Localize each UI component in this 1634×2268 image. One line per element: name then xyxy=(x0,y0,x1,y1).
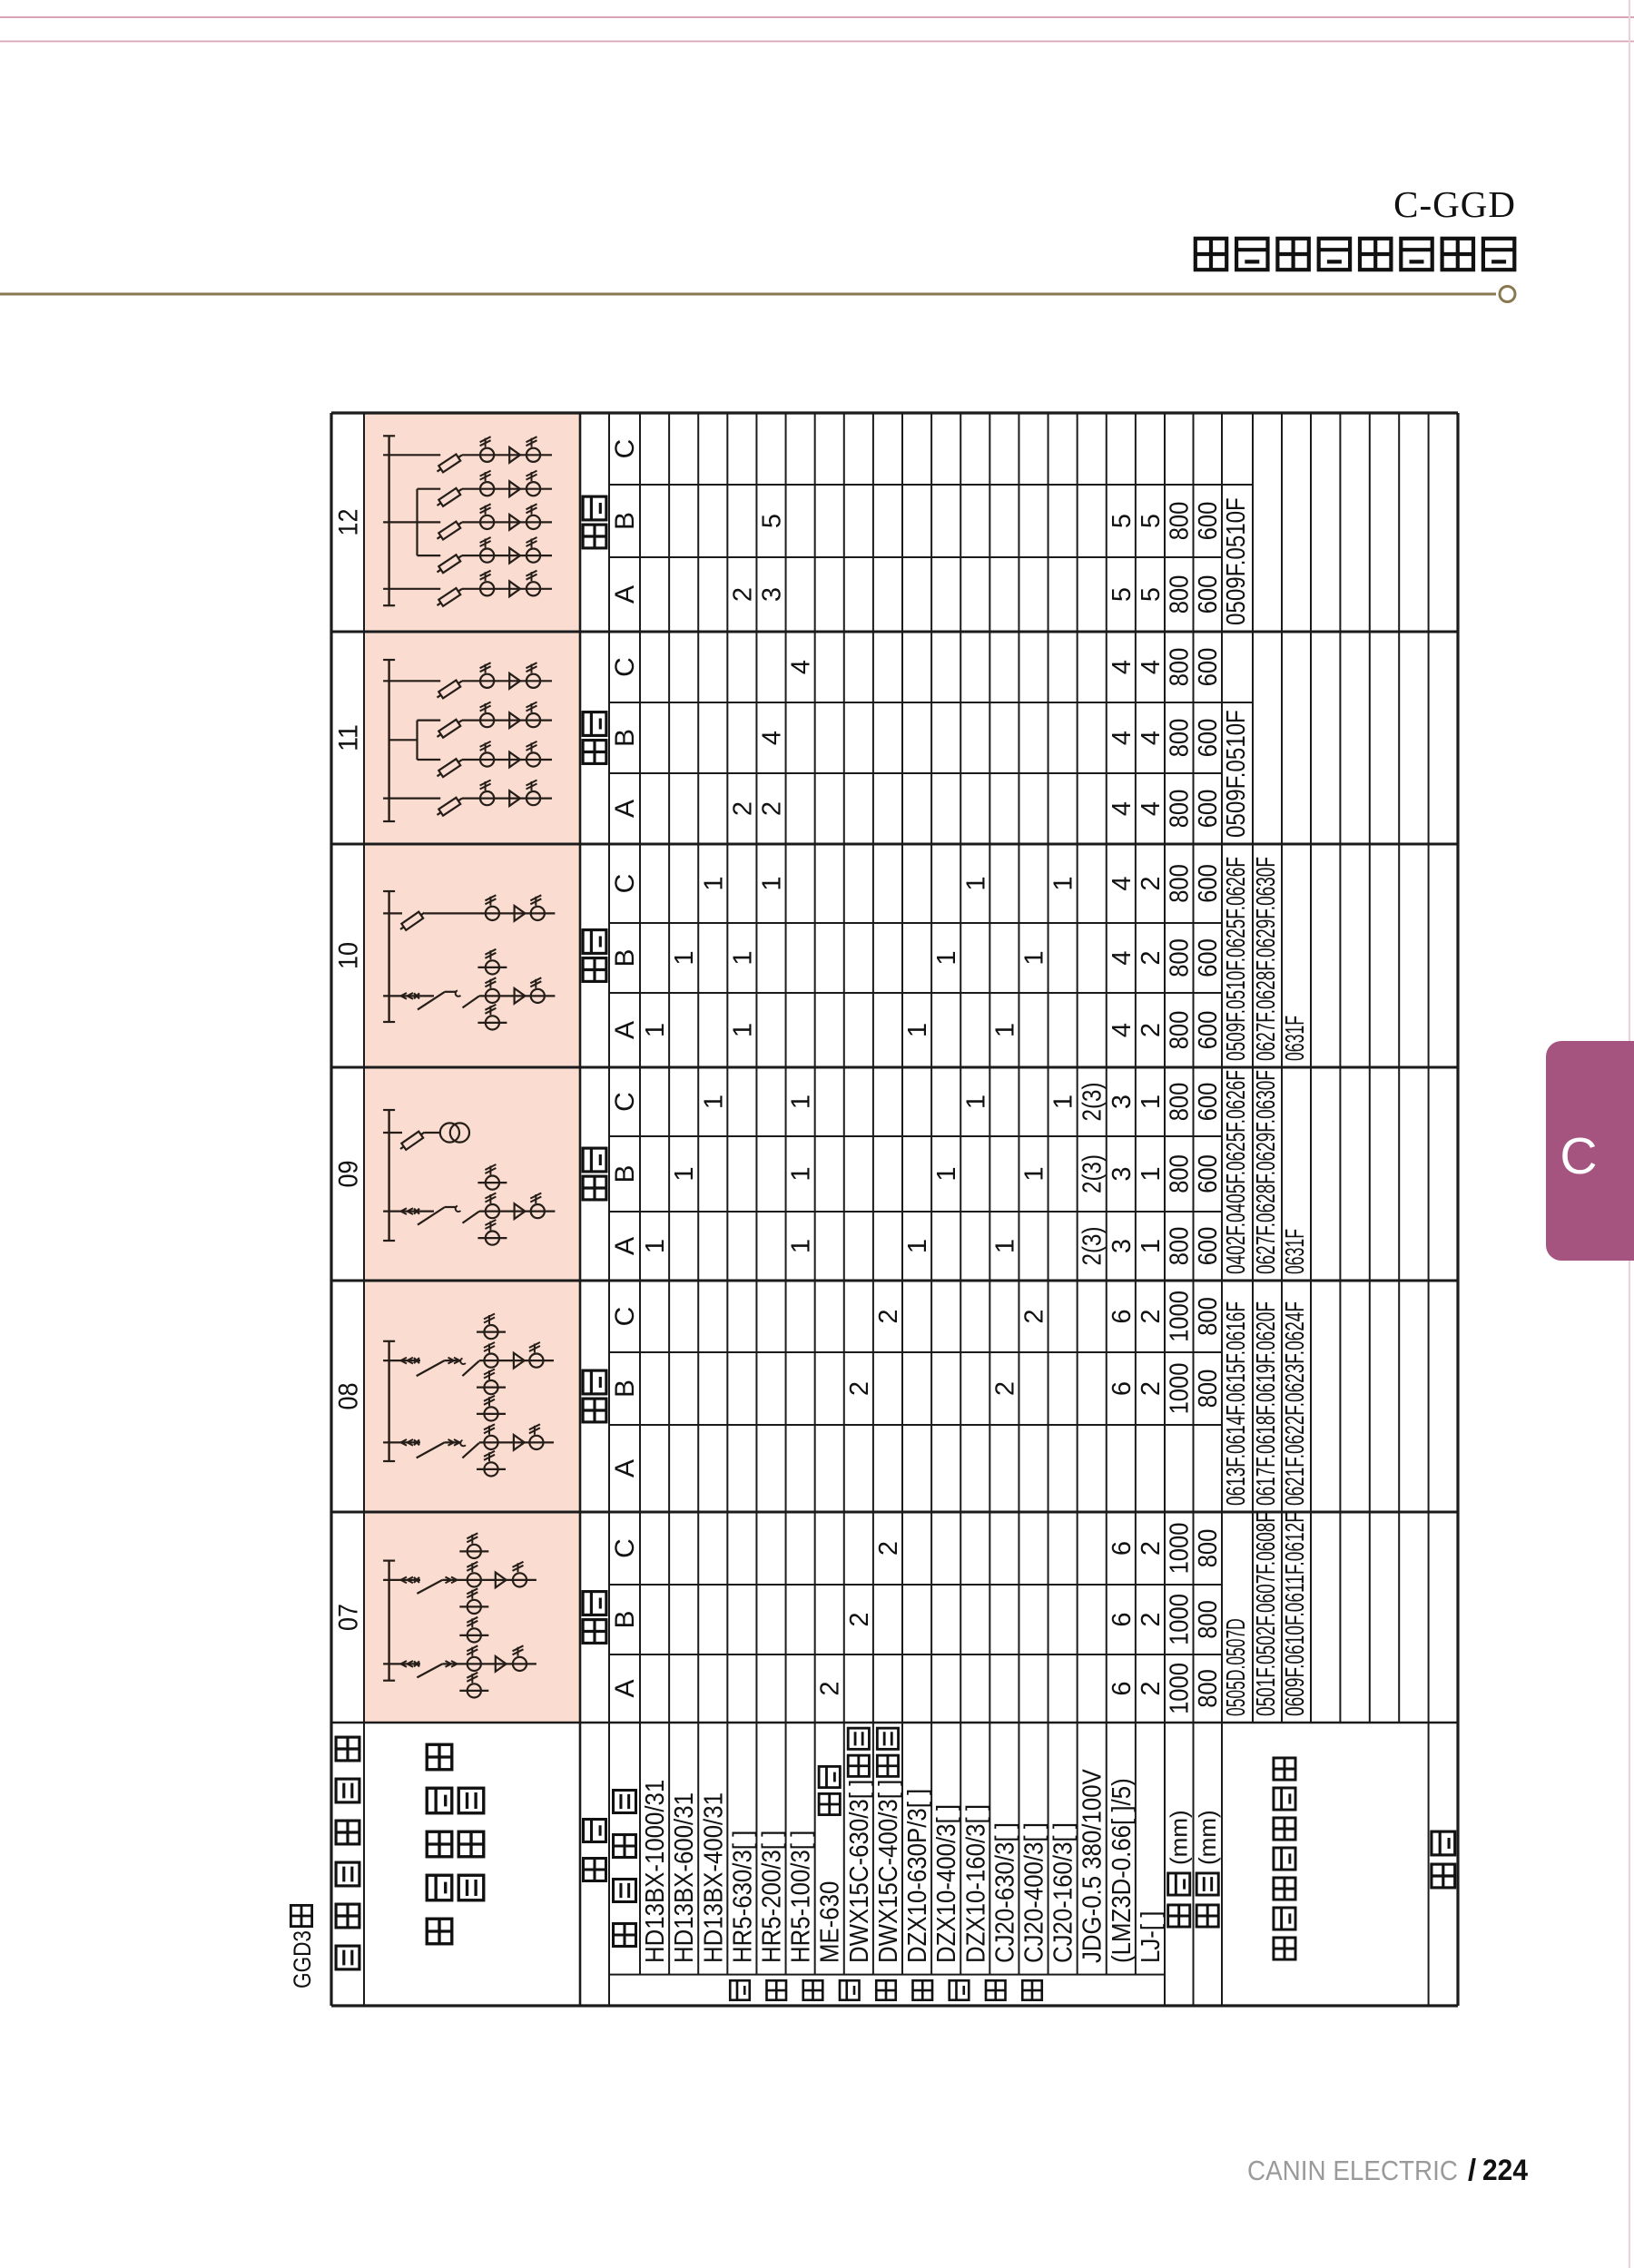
svg-text:800: 800 xyxy=(1194,1370,1223,1409)
svg-text:4: 4 xyxy=(758,731,787,745)
svg-text:1: 1 xyxy=(787,1239,816,1253)
svg-text:2(3): 2(3) xyxy=(1078,1154,1107,1193)
svg-text:4: 4 xyxy=(1107,801,1137,816)
svg-text:2: 2 xyxy=(1137,1309,1166,1323)
svg-text:1: 1 xyxy=(1049,876,1078,890)
svg-text:1: 1 xyxy=(699,1095,728,1109)
svg-text:1: 1 xyxy=(1137,1095,1166,1109)
svg-text:0505D.0507D: 0505D.0507D xyxy=(1222,1618,1251,1716)
svg-text:CANIN ELECTRIC: CANIN ELECTRIC xyxy=(1247,2155,1458,2186)
svg-text:1: 1 xyxy=(787,1166,816,1181)
svg-text:800: 800 xyxy=(1194,1529,1223,1568)
svg-text:0631F: 0631F xyxy=(1281,1229,1310,1274)
svg-text:B: B xyxy=(610,1379,640,1398)
svg-text:1: 1 xyxy=(932,1166,961,1181)
svg-text:1000: 1000 xyxy=(1166,1291,1195,1342)
svg-text:(LMZ3D-0.66[ ]/5): (LMZ3D-0.66[ ]/5) xyxy=(1107,1778,1137,1963)
svg-text:DZX10-630P/3[ ]: DZX10-630P/3[ ] xyxy=(903,1789,932,1963)
svg-text:5: 5 xyxy=(758,514,787,528)
svg-text:800: 800 xyxy=(1194,1669,1223,1708)
svg-text:1: 1 xyxy=(1020,1166,1049,1181)
svg-text:600: 600 xyxy=(1194,575,1223,614)
svg-text:0627F.0628F.0629F.0630F: 0627F.0628F.0629F.0630F xyxy=(1252,1070,1281,1274)
svg-text:DZX10-160/3[ ]: DZX10-160/3[ ] xyxy=(961,1804,990,1963)
svg-text:12: 12 xyxy=(334,509,364,536)
svg-text:1: 1 xyxy=(728,1023,757,1037)
svg-text:2: 2 xyxy=(874,1541,903,1556)
svg-text:2: 2 xyxy=(728,587,757,602)
svg-text:800: 800 xyxy=(1194,1297,1223,1336)
svg-text:1000: 1000 xyxy=(1166,1663,1195,1714)
svg-text:1: 1 xyxy=(758,876,787,890)
svg-text:09: 09 xyxy=(334,1161,364,1188)
svg-text:08: 08 xyxy=(334,1383,364,1410)
svg-text:4: 4 xyxy=(1137,801,1166,816)
svg-text:600: 600 xyxy=(1194,719,1223,758)
svg-text:3: 3 xyxy=(1107,1095,1137,1109)
svg-text:1: 1 xyxy=(1137,1239,1166,1253)
svg-text:2: 2 xyxy=(758,801,787,816)
svg-text:0627F.0628F.0629F.0630F: 0627F.0628F.0629F.0630F xyxy=(1252,857,1281,1061)
svg-text:1: 1 xyxy=(670,950,699,965)
svg-text:800: 800 xyxy=(1166,790,1195,829)
svg-text:1: 1 xyxy=(641,1239,670,1253)
svg-text:(mm): (mm) xyxy=(1194,1810,1221,1865)
svg-text:A: A xyxy=(610,1679,640,1697)
svg-text:0509F.0510F.0625F.0626F: 0509F.0510F.0625F.0626F xyxy=(1222,857,1251,1061)
svg-text:1000: 1000 xyxy=(1166,1594,1195,1645)
svg-text:1: 1 xyxy=(961,876,990,890)
svg-text:224: 224 xyxy=(1482,2154,1528,2186)
svg-text:800: 800 xyxy=(1166,1083,1195,1122)
svg-text:6: 6 xyxy=(1107,1681,1137,1695)
svg-text:LJ-[ ]: LJ-[ ] xyxy=(1137,1911,1166,1963)
svg-text:800: 800 xyxy=(1166,648,1195,687)
svg-text:2: 2 xyxy=(845,1381,874,1396)
svg-text:2: 2 xyxy=(1020,1309,1049,1323)
svg-text:5: 5 xyxy=(1137,587,1166,602)
svg-text:A: A xyxy=(610,800,640,818)
svg-text:B: B xyxy=(610,729,640,747)
svg-text:2: 2 xyxy=(816,1681,845,1695)
svg-text:(mm): (mm) xyxy=(1166,1810,1193,1865)
svg-text:HR5-200/3[ ]: HR5-200/3[ ] xyxy=(758,1831,787,1963)
svg-text:1: 1 xyxy=(670,1166,699,1181)
svg-text:B: B xyxy=(610,512,640,530)
svg-text:B: B xyxy=(610,1164,640,1183)
svg-text:1000: 1000 xyxy=(1166,1363,1195,1415)
svg-text:DZX10-400/3[ ]: DZX10-400/3[ ] xyxy=(932,1804,961,1963)
svg-text:5: 5 xyxy=(1137,514,1166,528)
svg-text:0402F.0405F.0625F.0626F: 0402F.0405F.0625F.0626F xyxy=(1222,1070,1251,1274)
svg-text:4: 4 xyxy=(1107,876,1137,890)
svg-text:2: 2 xyxy=(1137,950,1166,965)
svg-text:A: A xyxy=(610,1237,640,1255)
svg-text:5: 5 xyxy=(1107,514,1137,528)
svg-text:800: 800 xyxy=(1166,1011,1195,1050)
svg-text:800: 800 xyxy=(1194,1600,1223,1639)
svg-text:C-GGD: C-GGD xyxy=(1393,183,1516,225)
svg-text:600: 600 xyxy=(1194,502,1223,541)
svg-text:B: B xyxy=(610,948,640,967)
svg-text:HD13BX-400/31: HD13BX-400/31 xyxy=(699,1792,728,1963)
svg-text:3: 3 xyxy=(1107,1239,1137,1253)
svg-text:C: C xyxy=(610,439,640,459)
svg-text:B: B xyxy=(610,1610,640,1628)
svg-text:1000: 1000 xyxy=(1166,1523,1195,1575)
svg-text:C: C xyxy=(610,1092,640,1112)
svg-text:0609F.0610F.0611F.0612F: 0609F.0610F.0611F.0612F xyxy=(1281,1512,1310,1716)
svg-text:2: 2 xyxy=(1137,1612,1166,1626)
svg-text:C: C xyxy=(610,874,640,894)
svg-text:HD13BX-600/31: HD13BX-600/31 xyxy=(670,1792,699,1963)
svg-text:CJ20-160/3[ ]: CJ20-160/3[ ] xyxy=(1049,1822,1078,1963)
svg-text:A: A xyxy=(610,1021,640,1039)
svg-text:800: 800 xyxy=(1166,864,1195,903)
svg-text:4: 4 xyxy=(787,660,816,674)
svg-text:600: 600 xyxy=(1194,648,1223,687)
svg-text:600: 600 xyxy=(1194,1011,1223,1050)
svg-text:0621F.0622F.0623F.0624F: 0621F.0622F.0623F.0624F xyxy=(1281,1301,1310,1506)
svg-text:10: 10 xyxy=(334,942,364,969)
svg-text:C: C xyxy=(1560,1127,1597,1185)
svg-text:A: A xyxy=(610,585,640,604)
svg-text:0631F: 0631F xyxy=(1281,1016,1310,1061)
svg-text:1: 1 xyxy=(787,1095,816,1109)
svg-text:0509F.0510F: 0509F.0510F xyxy=(1222,497,1251,625)
svg-text:3: 3 xyxy=(1107,1166,1137,1181)
svg-text:600: 600 xyxy=(1194,864,1223,903)
svg-text:C: C xyxy=(610,657,640,677)
svg-text:A: A xyxy=(610,1459,640,1478)
svg-text:1: 1 xyxy=(699,876,728,890)
svg-text:07: 07 xyxy=(334,1604,364,1631)
svg-text:1: 1 xyxy=(990,1239,1019,1253)
svg-text:4: 4 xyxy=(1137,731,1166,745)
svg-text:0509F.0510F: 0509F.0510F xyxy=(1222,710,1251,838)
svg-text:2: 2 xyxy=(1137,1023,1166,1037)
svg-text:800: 800 xyxy=(1166,502,1195,541)
svg-text:6: 6 xyxy=(1107,1381,1137,1396)
svg-text:600: 600 xyxy=(1194,1154,1223,1193)
svg-text:800: 800 xyxy=(1166,1227,1195,1266)
svg-text:4: 4 xyxy=(1107,1023,1137,1037)
svg-text:C: C xyxy=(610,1307,640,1327)
svg-text:2: 2 xyxy=(990,1381,1019,1396)
svg-text:2(3): 2(3) xyxy=(1078,1227,1107,1266)
svg-text:600: 600 xyxy=(1194,1227,1223,1266)
svg-text:2: 2 xyxy=(1137,1541,1166,1556)
svg-text:DWX15C-630/3[ ]: DWX15C-630/3[ ] xyxy=(845,1780,874,1963)
svg-text:GGD3: GGD3 xyxy=(289,1930,316,1988)
svg-text:1: 1 xyxy=(932,950,961,965)
svg-text:6: 6 xyxy=(1107,1309,1137,1323)
svg-text:HR5-630/3[ ]: HR5-630/3[ ] xyxy=(728,1831,757,1963)
svg-text:600: 600 xyxy=(1194,790,1223,829)
svg-text:JDG-0.5 380/100V: JDG-0.5 380/100V xyxy=(1078,1769,1107,1963)
svg-text:6: 6 xyxy=(1107,1541,1137,1556)
svg-text:600: 600 xyxy=(1194,1083,1223,1122)
svg-text:800: 800 xyxy=(1166,938,1195,977)
svg-text:11: 11 xyxy=(334,724,364,751)
svg-text:2: 2 xyxy=(845,1612,874,1626)
svg-text:2: 2 xyxy=(1137,876,1166,890)
svg-text:HR5-100/3[ ]: HR5-100/3[ ] xyxy=(787,1831,816,1963)
svg-text:800: 800 xyxy=(1166,719,1195,758)
svg-text:2: 2 xyxy=(1137,1681,1166,1695)
svg-text:5: 5 xyxy=(1107,587,1137,602)
svg-text:/: / xyxy=(1468,2153,1476,2186)
svg-text:HD13BX-1000/31: HD13BX-1000/31 xyxy=(641,1780,670,1963)
svg-text:1: 1 xyxy=(1020,950,1049,965)
svg-text:800: 800 xyxy=(1166,575,1195,614)
svg-text:800: 800 xyxy=(1166,1154,1195,1193)
svg-text:CJ20-400/3[ ]: CJ20-400/3[ ] xyxy=(1020,1822,1049,1963)
svg-text:2: 2 xyxy=(1137,1381,1166,1396)
svg-text:4: 4 xyxy=(1137,660,1166,674)
svg-text:2: 2 xyxy=(728,801,757,816)
svg-text:1: 1 xyxy=(641,1023,670,1037)
svg-text:3: 3 xyxy=(758,587,787,602)
svg-text:0617F.0618F.0619F.0620F: 0617F.0618F.0619F.0620F xyxy=(1252,1301,1281,1506)
svg-text:600: 600 xyxy=(1194,938,1223,977)
svg-text:4: 4 xyxy=(1107,660,1137,674)
svg-text:1: 1 xyxy=(728,950,757,965)
svg-text:4: 4 xyxy=(1107,731,1137,745)
svg-text:2: 2 xyxy=(874,1309,903,1323)
svg-text:1: 1 xyxy=(990,1023,1019,1037)
svg-text:2(3): 2(3) xyxy=(1078,1083,1107,1122)
svg-text:C: C xyxy=(610,1538,640,1558)
svg-text:0501F.0502F.0607F.0608F: 0501F.0502F.0607F.0608F xyxy=(1252,1512,1281,1716)
svg-text:1: 1 xyxy=(1049,1095,1078,1109)
svg-text:4: 4 xyxy=(1107,950,1137,965)
svg-text:1: 1 xyxy=(903,1023,932,1037)
svg-text:ME-630: ME-630 xyxy=(816,1881,845,1963)
svg-text:1: 1 xyxy=(1137,1166,1166,1181)
svg-text:CJ20-630/3[ ]: CJ20-630/3[ ] xyxy=(990,1822,1019,1963)
svg-text:6: 6 xyxy=(1107,1612,1137,1626)
svg-text:1: 1 xyxy=(903,1239,932,1253)
svg-text:DWX15C-400/3[ ]: DWX15C-400/3[ ] xyxy=(874,1780,903,1963)
svg-text:0613F.0614F.0615F.0616F: 0613F.0614F.0615F.0616F xyxy=(1222,1301,1251,1506)
svg-text:1: 1 xyxy=(961,1095,990,1109)
